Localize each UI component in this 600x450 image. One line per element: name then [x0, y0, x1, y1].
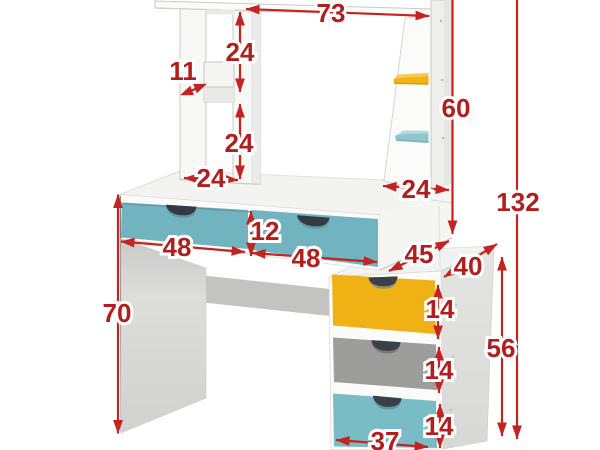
svg-text:24: 24	[402, 174, 431, 204]
svg-text:56: 56	[487, 333, 516, 363]
svg-text:70: 70	[103, 298, 132, 328]
svg-text:37: 37	[371, 426, 400, 450]
svg-text:132: 132	[496, 187, 539, 217]
svg-text:60: 60	[442, 93, 471, 123]
svg-text:45: 45	[405, 239, 434, 269]
svg-text:11: 11	[169, 56, 197, 86]
svg-text:12: 12	[251, 216, 280, 246]
svg-text:14: 14	[425, 355, 454, 385]
svg-text:14: 14	[425, 411, 454, 441]
svg-text:24: 24	[225, 128, 254, 158]
svg-text:48: 48	[163, 232, 192, 262]
svg-text:14: 14	[426, 294, 455, 324]
svg-text:48: 48	[292, 243, 321, 273]
svg-text:24: 24	[226, 37, 255, 67]
svg-text:40: 40	[454, 251, 483, 281]
svg-text:73: 73	[317, 0, 346, 28]
svg-text:24: 24	[197, 163, 226, 193]
